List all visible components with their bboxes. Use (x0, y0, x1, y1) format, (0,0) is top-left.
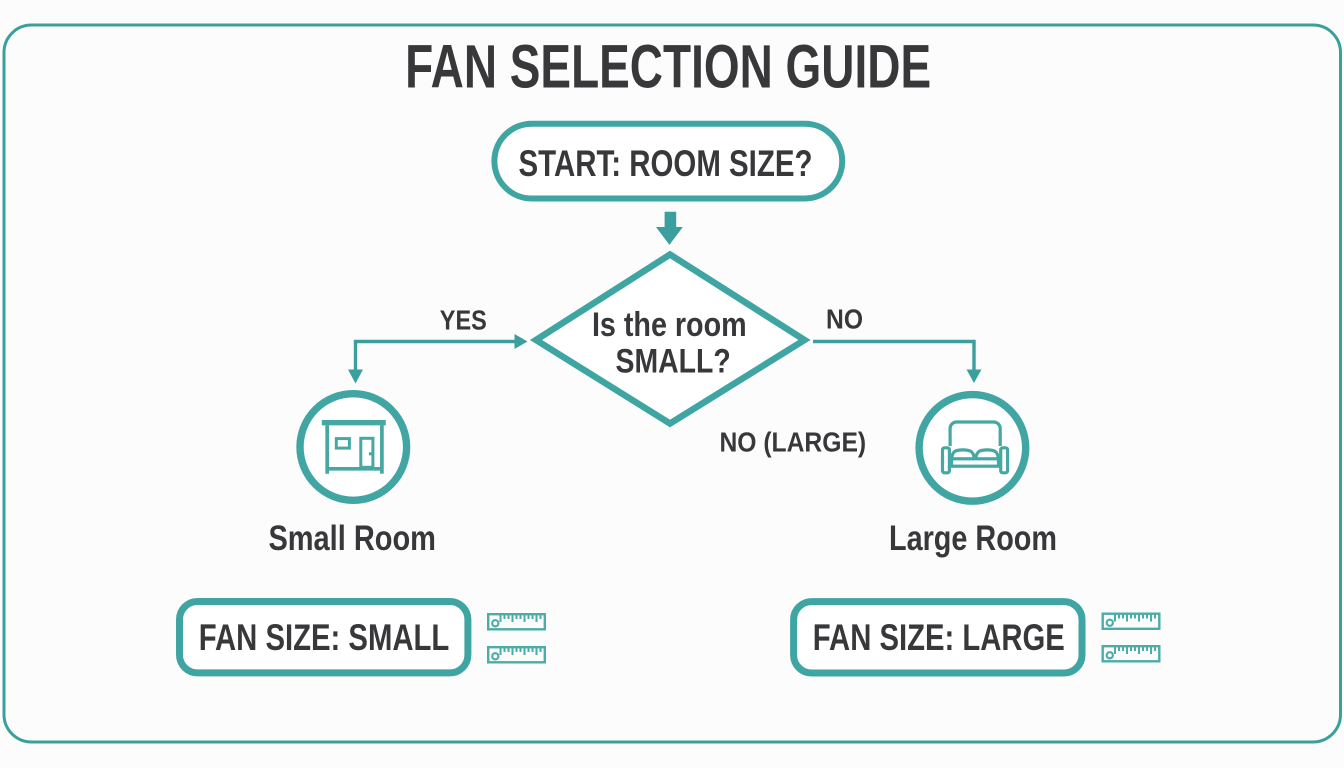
svg-text:Large Room: Large Room (889, 519, 1057, 558)
svg-text:START: ROOM SIZE?: START: ROOM SIZE? (519, 143, 813, 184)
svg-text:NO: NO (826, 304, 863, 335)
svg-text:SMALL?: SMALL? (616, 342, 731, 380)
svg-text:FAN SELECTION GUIDE: FAN SELECTION GUIDE (405, 32, 931, 101)
svg-text:FAN SIZE: SMALL: FAN SIZE: SMALL (199, 617, 450, 658)
svg-text:YES: YES (440, 305, 487, 336)
svg-text:Is the room: Is the room (592, 306, 747, 344)
svg-text:Small Room: Small Room (268, 519, 436, 558)
svg-text:NO (LARGE): NO (LARGE) (719, 426, 866, 457)
svg-text:FAN SIZE: LARGE: FAN SIZE: LARGE (813, 617, 1065, 658)
